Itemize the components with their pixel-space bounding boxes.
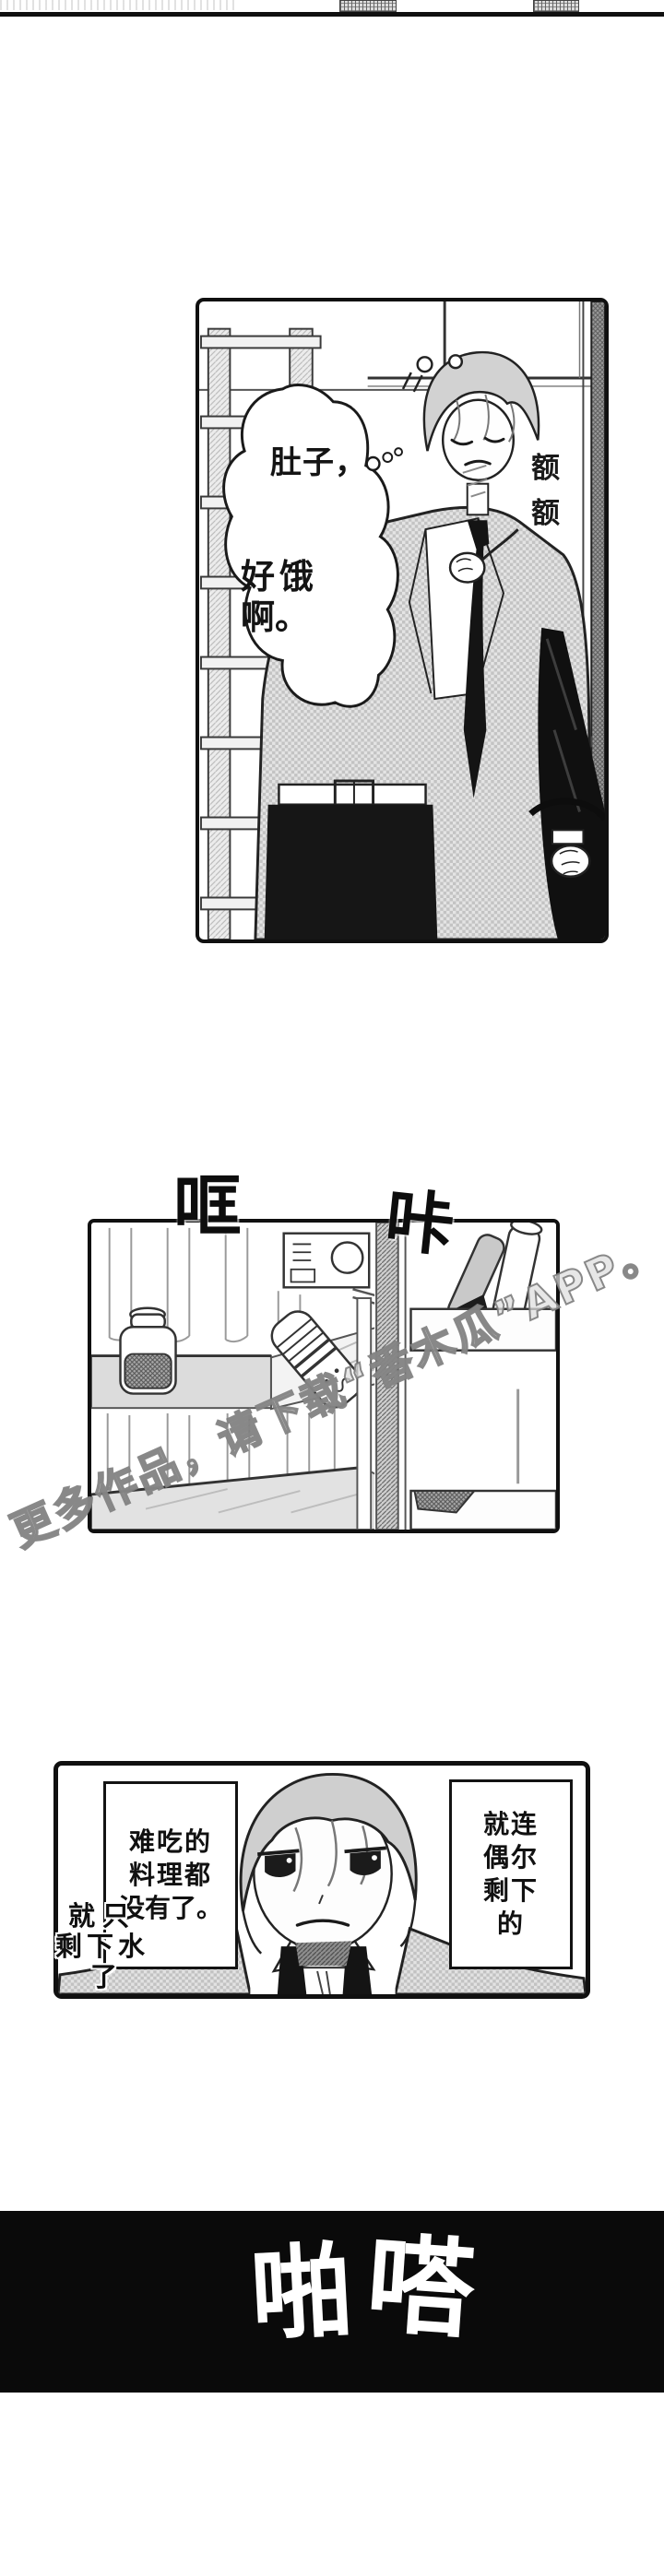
sfx-banner: 啪 嗒 bbox=[0, 2211, 664, 2393]
sfx-tremble-char2: 额 bbox=[531, 490, 560, 531]
chin-shadow bbox=[295, 1941, 351, 1966]
caption-water: 就只 剩下水 了 bbox=[55, 1901, 149, 1992]
caption-water-line1: 就只 bbox=[68, 1901, 149, 1932]
thought-text-line2: 好饿 bbox=[241, 559, 318, 596]
caption-box-right: 就连 偶尔 剩下 的 bbox=[449, 1779, 573, 1969]
sfx-click: 咔 bbox=[382, 1186, 456, 1260]
caption-right-line3: 剩下 bbox=[483, 1874, 539, 1908]
sfx-clang: 哐 bbox=[173, 1173, 242, 1241]
divider bbox=[357, 1298, 371, 1530]
top-panel-remnant-tone bbox=[0, 0, 236, 10]
caption-right-line4: 的 bbox=[497, 1908, 525, 1941]
thought-text-line3: 啊。 bbox=[241, 599, 309, 636]
caption-water-line2: 剩下水 bbox=[55, 1932, 149, 1962]
sfx-tremble: 额 额 bbox=[531, 444, 560, 531]
caption-left-line1: 难吃的 bbox=[129, 1826, 212, 1859]
top-panel-remnant-hatch-left bbox=[339, 0, 397, 12]
motion-lines bbox=[403, 372, 422, 392]
eye-right bbox=[350, 1850, 380, 1875]
caption-right-line1: 就连 bbox=[483, 1808, 539, 1841]
thought-dot bbox=[418, 357, 433, 372]
thought-dot bbox=[449, 355, 462, 368]
fridge-control-box bbox=[284, 1234, 370, 1288]
eye-left bbox=[265, 1853, 295, 1877]
caption-right-line2: 偶尔 bbox=[483, 1841, 539, 1874]
caption-water-line3: 了 bbox=[90, 1962, 149, 1992]
sfx-tremble-char1: 额 bbox=[531, 444, 560, 486]
manga-page: 肚子， 好饿 啊。 额 额 bbox=[0, 0, 664, 2576]
caption-left-line2: 料理都 bbox=[129, 1859, 212, 1892]
banner-sfx-char2: 嗒 bbox=[363, 2231, 478, 2346]
top-panel-border-line bbox=[0, 12, 664, 17]
thought-text-line1: 肚子， bbox=[270, 446, 367, 480]
top-panel-remnant-hatch-right bbox=[533, 0, 579, 12]
banner-sfx-char1: 啪 bbox=[248, 2239, 355, 2346]
